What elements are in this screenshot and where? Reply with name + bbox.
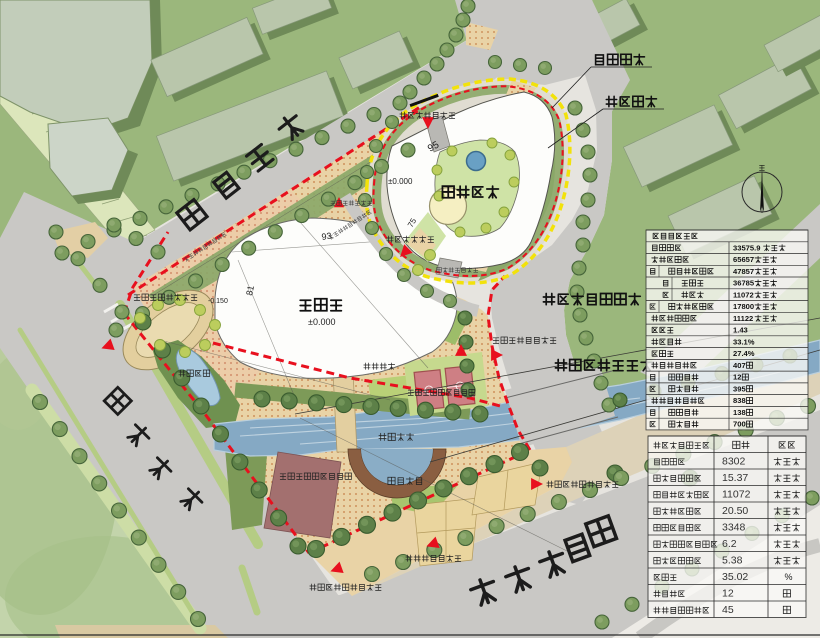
svg-text:17800: 17800 (733, 302, 754, 311)
svg-text:15.37: 15.37 (722, 472, 748, 484)
svg-text:±0.000: ±0.000 (388, 177, 413, 186)
svg-text:3348: 3348 (722, 522, 746, 534)
svg-text:838: 838 (733, 396, 746, 405)
svg-text:93: 93 (321, 231, 332, 242)
svg-text:407: 407 (733, 361, 746, 370)
svg-text:%: % (784, 572, 792, 582)
svg-text:138: 138 (733, 408, 746, 417)
svg-text:65657: 65657 (733, 255, 754, 264)
svg-text:1.43: 1.43 (733, 326, 748, 335)
svg-text:27.4%: 27.4% (733, 349, 755, 358)
svg-text:33.1%: 33.1% (733, 337, 755, 346)
svg-text:11072: 11072 (733, 290, 754, 299)
svg-text:12: 12 (722, 588, 734, 600)
svg-text:700: 700 (733, 420, 746, 429)
svg-text:6.2: 6.2 (722, 538, 737, 550)
svg-text:395: 395 (733, 384, 746, 393)
svg-text:11122: 11122 (733, 314, 753, 323)
svg-text:47857: 47857 (733, 267, 754, 276)
svg-text:20.50: 20.50 (722, 505, 748, 517)
svg-text:35.02: 35.02 (722, 571, 748, 583)
svg-text:11072: 11072 (722, 489, 751, 501)
svg-text:36785: 36785 (733, 279, 755, 288)
svg-text:±0.000: ±0.000 (308, 317, 335, 327)
svg-text:45: 45 (722, 604, 734, 616)
svg-text:8302: 8302 (722, 456, 746, 468)
svg-text:5.38: 5.38 (722, 555, 743, 567)
svg-text:-0.150: -0.150 (208, 298, 228, 305)
svg-text:12: 12 (733, 373, 741, 382)
svg-text:81: 81 (244, 285, 256, 297)
svg-text:33575.9: 33575.9 (733, 243, 760, 252)
